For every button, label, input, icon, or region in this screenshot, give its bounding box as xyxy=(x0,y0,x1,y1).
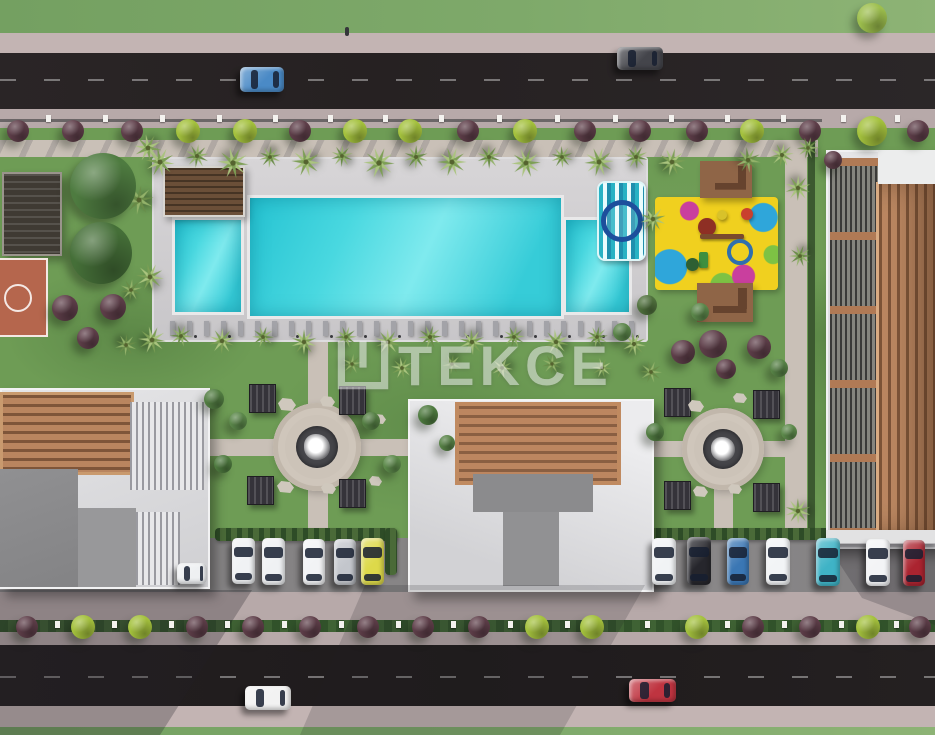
kids-pool xyxy=(172,217,244,315)
palm-tree xyxy=(401,142,431,172)
fence-post xyxy=(328,115,333,122)
hedge-bush xyxy=(233,119,257,143)
tree xyxy=(637,295,657,315)
garden-pergola-large xyxy=(2,172,62,256)
car-windshield xyxy=(305,548,323,558)
hedge-bush xyxy=(128,615,152,639)
hedge-bush xyxy=(574,120,596,142)
yellow-car-parked xyxy=(361,538,384,585)
car-rear-window xyxy=(200,566,204,580)
car-windshield xyxy=(729,547,747,557)
hedge-bush xyxy=(799,616,821,638)
left-building-wood-pergola-roof xyxy=(0,392,134,475)
hedge-bush xyxy=(857,116,887,146)
fence-post xyxy=(46,115,51,122)
purple-shrub xyxy=(52,295,78,321)
palm-tree xyxy=(786,242,813,269)
hedge-bush xyxy=(742,616,764,638)
fence-post xyxy=(508,621,513,628)
playground-equipment xyxy=(699,252,708,268)
purple-shrub xyxy=(77,327,99,349)
fence-post xyxy=(439,115,444,122)
fence-post xyxy=(565,621,570,628)
lounger-table xyxy=(330,335,333,338)
palm-tree xyxy=(794,134,821,161)
tree xyxy=(613,323,631,341)
palm-tree xyxy=(416,323,445,352)
tree xyxy=(383,455,401,473)
pedestrian xyxy=(345,27,349,36)
white-car-parked xyxy=(766,538,790,585)
purple-shrub xyxy=(824,151,842,169)
lounger-table xyxy=(534,335,537,338)
hedge-bush xyxy=(468,616,490,638)
hedge-bush xyxy=(299,616,321,638)
playground-equipment xyxy=(686,258,699,271)
tree xyxy=(781,424,797,440)
sun-lounger xyxy=(493,321,498,336)
hedge-bush xyxy=(685,615,709,639)
middle-building-gray-t-bar xyxy=(473,474,593,512)
hedge-bush xyxy=(242,616,264,638)
tree xyxy=(70,153,136,219)
sun-lounger xyxy=(323,321,328,336)
water-slide-loop xyxy=(601,200,643,242)
car-windshield xyxy=(363,547,381,557)
black-car-parked xyxy=(687,537,711,585)
top-road-centerline xyxy=(0,79,935,81)
car-windshield xyxy=(654,547,673,557)
car-windshield xyxy=(184,566,189,582)
hedge-bush xyxy=(357,616,379,638)
fence-post xyxy=(894,621,899,628)
gray-car-top-road xyxy=(617,47,663,70)
playground-equipment xyxy=(717,210,727,220)
hedge-bush xyxy=(856,615,880,639)
bottom-grass-strip xyxy=(0,727,935,735)
red-car-parked xyxy=(903,540,925,586)
car-rear-window xyxy=(337,574,353,580)
white-car-parked xyxy=(652,538,676,585)
right-building-wood-facade xyxy=(876,182,935,534)
hedge-bush xyxy=(186,616,208,638)
fence-post xyxy=(103,115,108,122)
palm-tree xyxy=(205,324,238,357)
car-windshield xyxy=(234,547,252,557)
fence-post xyxy=(841,115,846,122)
plaza-left-path-west xyxy=(205,439,280,456)
top-road xyxy=(0,53,935,111)
left-building-louver-roof-a xyxy=(130,402,204,490)
palm-tree xyxy=(332,323,359,350)
parking-hedge-left-cap xyxy=(385,528,397,575)
fence-post xyxy=(895,115,900,122)
car-windshield xyxy=(336,548,354,558)
tree xyxy=(857,3,887,33)
fence-post xyxy=(383,115,388,122)
white-car-parked xyxy=(303,539,325,585)
fence-post xyxy=(396,621,401,628)
fence-post xyxy=(725,621,730,628)
hedge-bush xyxy=(62,120,84,142)
sun-lounger xyxy=(238,321,243,336)
car-windshield xyxy=(689,547,708,558)
basketball-court-circle xyxy=(4,284,32,312)
bottom-road-centerline xyxy=(0,676,935,678)
hedge-bush xyxy=(686,120,708,142)
sun-lounger xyxy=(578,321,583,336)
palm-tree xyxy=(329,143,355,169)
playground-equipment xyxy=(727,239,753,265)
tree xyxy=(229,412,247,430)
car-windshield xyxy=(640,682,648,700)
purple-shrub xyxy=(699,330,727,358)
palm-tree xyxy=(540,352,563,375)
hedge-bush xyxy=(907,120,929,142)
fence-post xyxy=(613,115,618,122)
fence-post xyxy=(217,115,222,122)
top-far-sidewalk xyxy=(0,33,935,53)
hedge-bush xyxy=(513,119,537,143)
middle-building-wood-pergola-roof xyxy=(455,402,621,485)
garden-pergola xyxy=(339,386,366,415)
playground-equipment xyxy=(741,208,753,220)
white-car-parked xyxy=(232,538,255,584)
fence-post xyxy=(781,115,786,122)
fence-post xyxy=(725,115,730,122)
car-windshield xyxy=(818,548,837,559)
white-car-parked xyxy=(262,538,285,585)
red-car-bottom-road xyxy=(629,679,676,702)
hedge-bush xyxy=(16,616,38,638)
purple-shrub xyxy=(747,335,771,359)
tree xyxy=(362,412,380,430)
car-rear-window xyxy=(690,574,707,581)
car-windshield xyxy=(905,549,923,559)
car-rear-window xyxy=(869,575,886,582)
fence-post xyxy=(112,621,117,628)
fence-post xyxy=(669,115,674,122)
car-rear-window xyxy=(655,574,672,581)
car-rear-window xyxy=(819,575,836,582)
palm-tree xyxy=(133,133,164,164)
palm-tree xyxy=(113,332,139,358)
left-building-gray-roof-b xyxy=(78,508,136,587)
tree xyxy=(204,389,224,409)
car-rear-window xyxy=(364,574,381,581)
garden-pergola xyxy=(664,481,691,510)
car-windshield xyxy=(256,689,264,707)
tree xyxy=(418,405,438,425)
middle-building-gray-t-stem xyxy=(503,512,559,586)
car-windshield xyxy=(264,547,282,557)
car-rear-window xyxy=(280,690,286,706)
white-car-parked xyxy=(177,563,207,584)
right-hedge-line xyxy=(808,140,815,532)
tree xyxy=(70,222,132,284)
car-rear-window xyxy=(769,574,786,581)
teal-car-parked xyxy=(816,538,840,586)
blue-car-parked xyxy=(727,538,749,585)
blue-car-top-road xyxy=(240,67,284,92)
car-rear-window xyxy=(664,683,670,699)
tree xyxy=(691,303,709,321)
fence-post xyxy=(273,115,278,122)
palm-tree xyxy=(581,144,616,179)
bottom-far-sidewalk xyxy=(0,706,935,727)
hedge-bush xyxy=(740,119,764,143)
fence-post xyxy=(169,621,174,628)
fence-post xyxy=(555,115,560,122)
left-building-louver-roof-b xyxy=(136,512,180,585)
hedge-bush xyxy=(909,616,931,638)
fence-post xyxy=(451,621,456,628)
car-rear-window xyxy=(235,573,252,579)
hedge-bush xyxy=(289,120,311,142)
white-car-parked xyxy=(866,539,890,586)
purple-shrub xyxy=(716,359,736,379)
hedge-bush xyxy=(398,119,422,143)
fountain-plaza-left-water-splash xyxy=(304,434,330,460)
hedge-bush xyxy=(525,615,549,639)
garden-pergola xyxy=(249,384,276,413)
site-plan-render: TEKCE xyxy=(0,0,935,735)
car-rear-window xyxy=(273,71,279,88)
car-rear-window xyxy=(652,51,658,67)
hedge-bush xyxy=(343,119,367,143)
tree xyxy=(646,423,664,441)
hedge-bush xyxy=(580,615,604,639)
car-windshield xyxy=(628,50,636,68)
garden-pergola xyxy=(753,390,780,419)
car-windshield xyxy=(251,70,259,89)
fence-post xyxy=(782,621,787,628)
fence-post xyxy=(339,621,344,628)
purple-shrub xyxy=(671,340,695,364)
fence-post xyxy=(645,621,650,628)
left-building-gray-roof-a xyxy=(0,469,78,587)
fence-post xyxy=(225,621,230,628)
purple-shrub xyxy=(100,294,126,320)
hedge-bush xyxy=(71,615,95,639)
garden-pergola xyxy=(247,476,274,505)
fountain-plaza-right-water-splash xyxy=(711,437,735,461)
sun-lounger xyxy=(408,321,413,336)
car-rear-window xyxy=(306,574,322,580)
garden-pergola xyxy=(339,479,366,508)
tree xyxy=(770,359,788,377)
plaza-right-path-east xyxy=(761,441,807,457)
plaza-left-path-east xyxy=(355,439,410,456)
right-building-balcony-louvers xyxy=(830,158,878,536)
playground-mat xyxy=(655,197,778,290)
main-pool xyxy=(247,195,564,319)
garden-pergola xyxy=(664,388,691,417)
car-windshield xyxy=(868,548,887,558)
garden-pergola xyxy=(753,483,780,512)
silver-car-parked xyxy=(334,539,356,585)
fence-post xyxy=(282,621,287,628)
palm-tree xyxy=(507,144,544,181)
tree xyxy=(214,455,232,473)
hedge-bush xyxy=(457,120,479,142)
fence-post xyxy=(497,115,502,122)
top-grass-strip xyxy=(0,0,935,33)
hedge-bush xyxy=(7,120,29,142)
right-building-white-roof-corner xyxy=(878,150,935,184)
car-rear-window xyxy=(730,574,746,581)
fence-post xyxy=(160,115,165,122)
white-car-bottom-road xyxy=(245,686,291,710)
fence-post xyxy=(55,621,60,628)
tree xyxy=(439,435,455,451)
fence-post xyxy=(839,621,844,628)
car-rear-window xyxy=(265,574,282,581)
car-rear-window xyxy=(906,575,922,581)
lounger-table xyxy=(364,335,367,338)
hedge-bush xyxy=(412,616,434,638)
car-windshield xyxy=(768,547,787,557)
